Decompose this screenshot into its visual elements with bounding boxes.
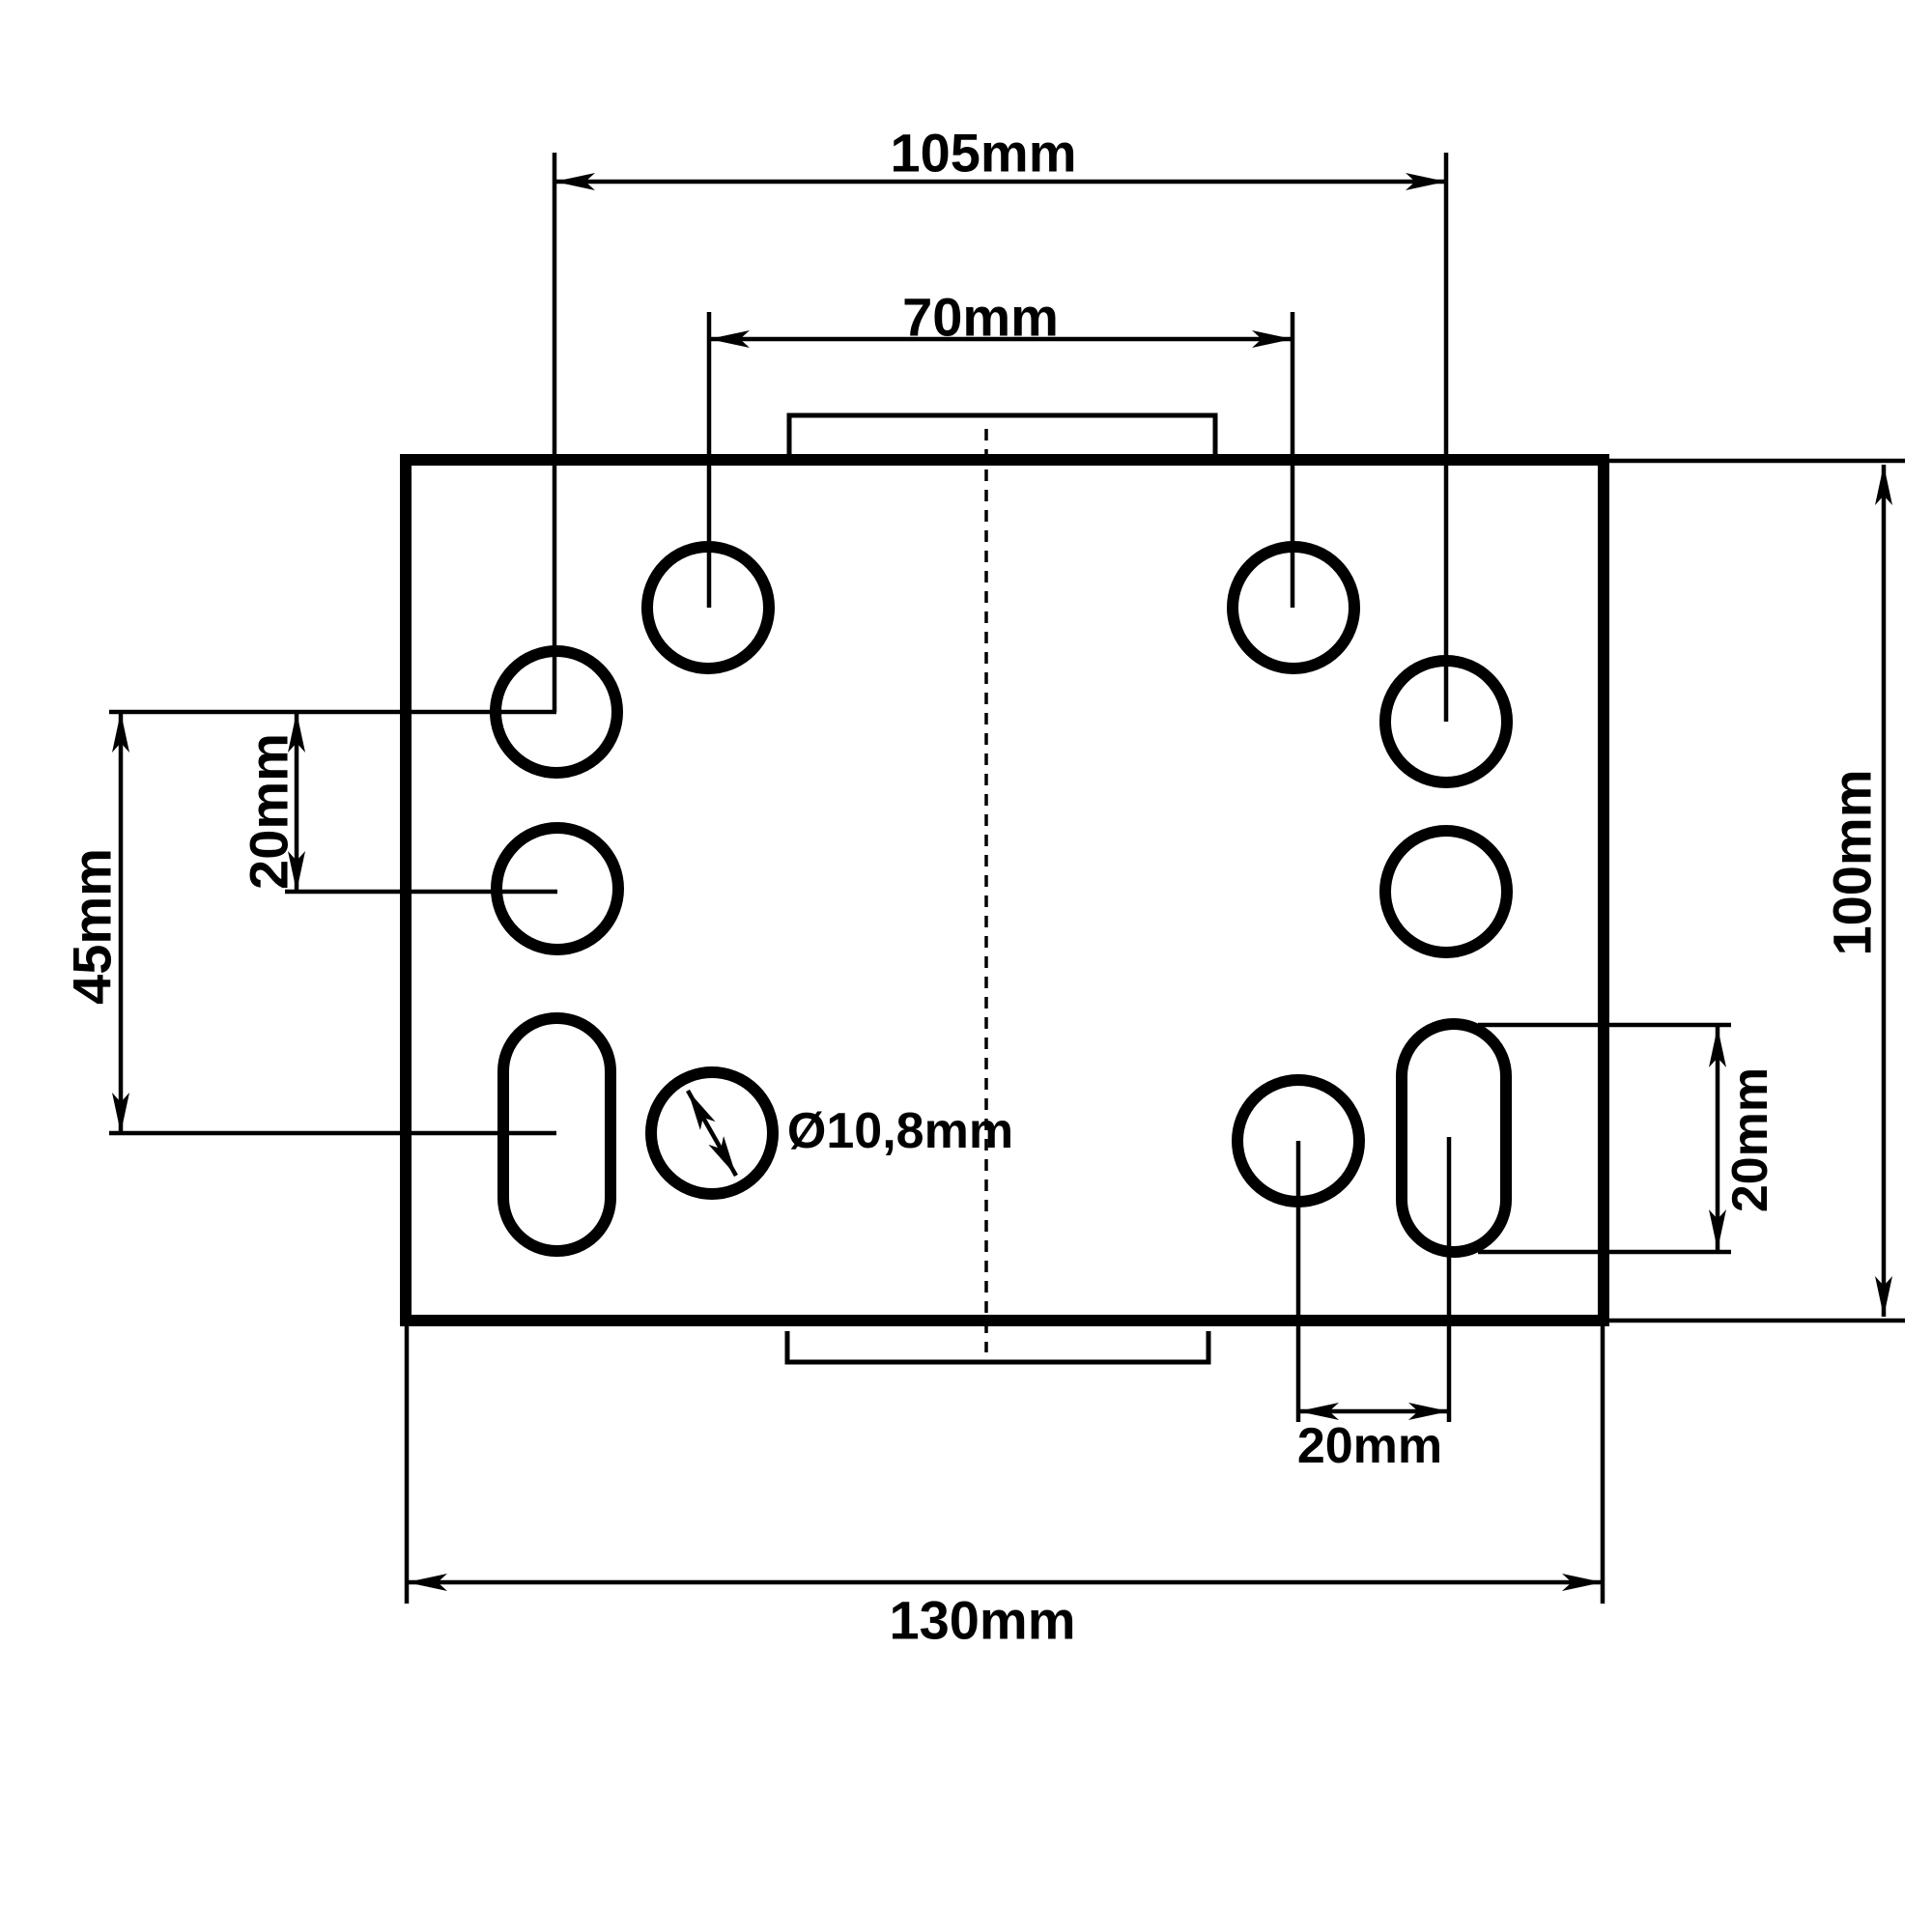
drawing-page: 105mm70mm45mm20mmØ10,8mm20mm20mm100mm130… <box>0 0 1932 1932</box>
dim-label-130mm: 130mm <box>889 1590 1075 1651</box>
hole-diameter-label: Ø10,8mm <box>787 1103 1013 1159</box>
dim-label-20mm-bottom: 20mm <box>1297 1418 1442 1474</box>
dim-label-105mm: 105mm <box>890 123 1076 184</box>
dim-label-70mm: 70mm <box>902 287 1059 348</box>
dim-label-20mm-right: 20mm <box>1722 1067 1778 1212</box>
technical-drawing: 105mm70mm45mm20mmØ10,8mm20mm20mm100mm130… <box>0 0 1932 1932</box>
dim-label-45mm: 45mm <box>62 848 123 1005</box>
dim-label-100mm: 100mm <box>1822 769 1883 955</box>
dim-label-20mm-left: 20mm <box>239 733 299 890</box>
